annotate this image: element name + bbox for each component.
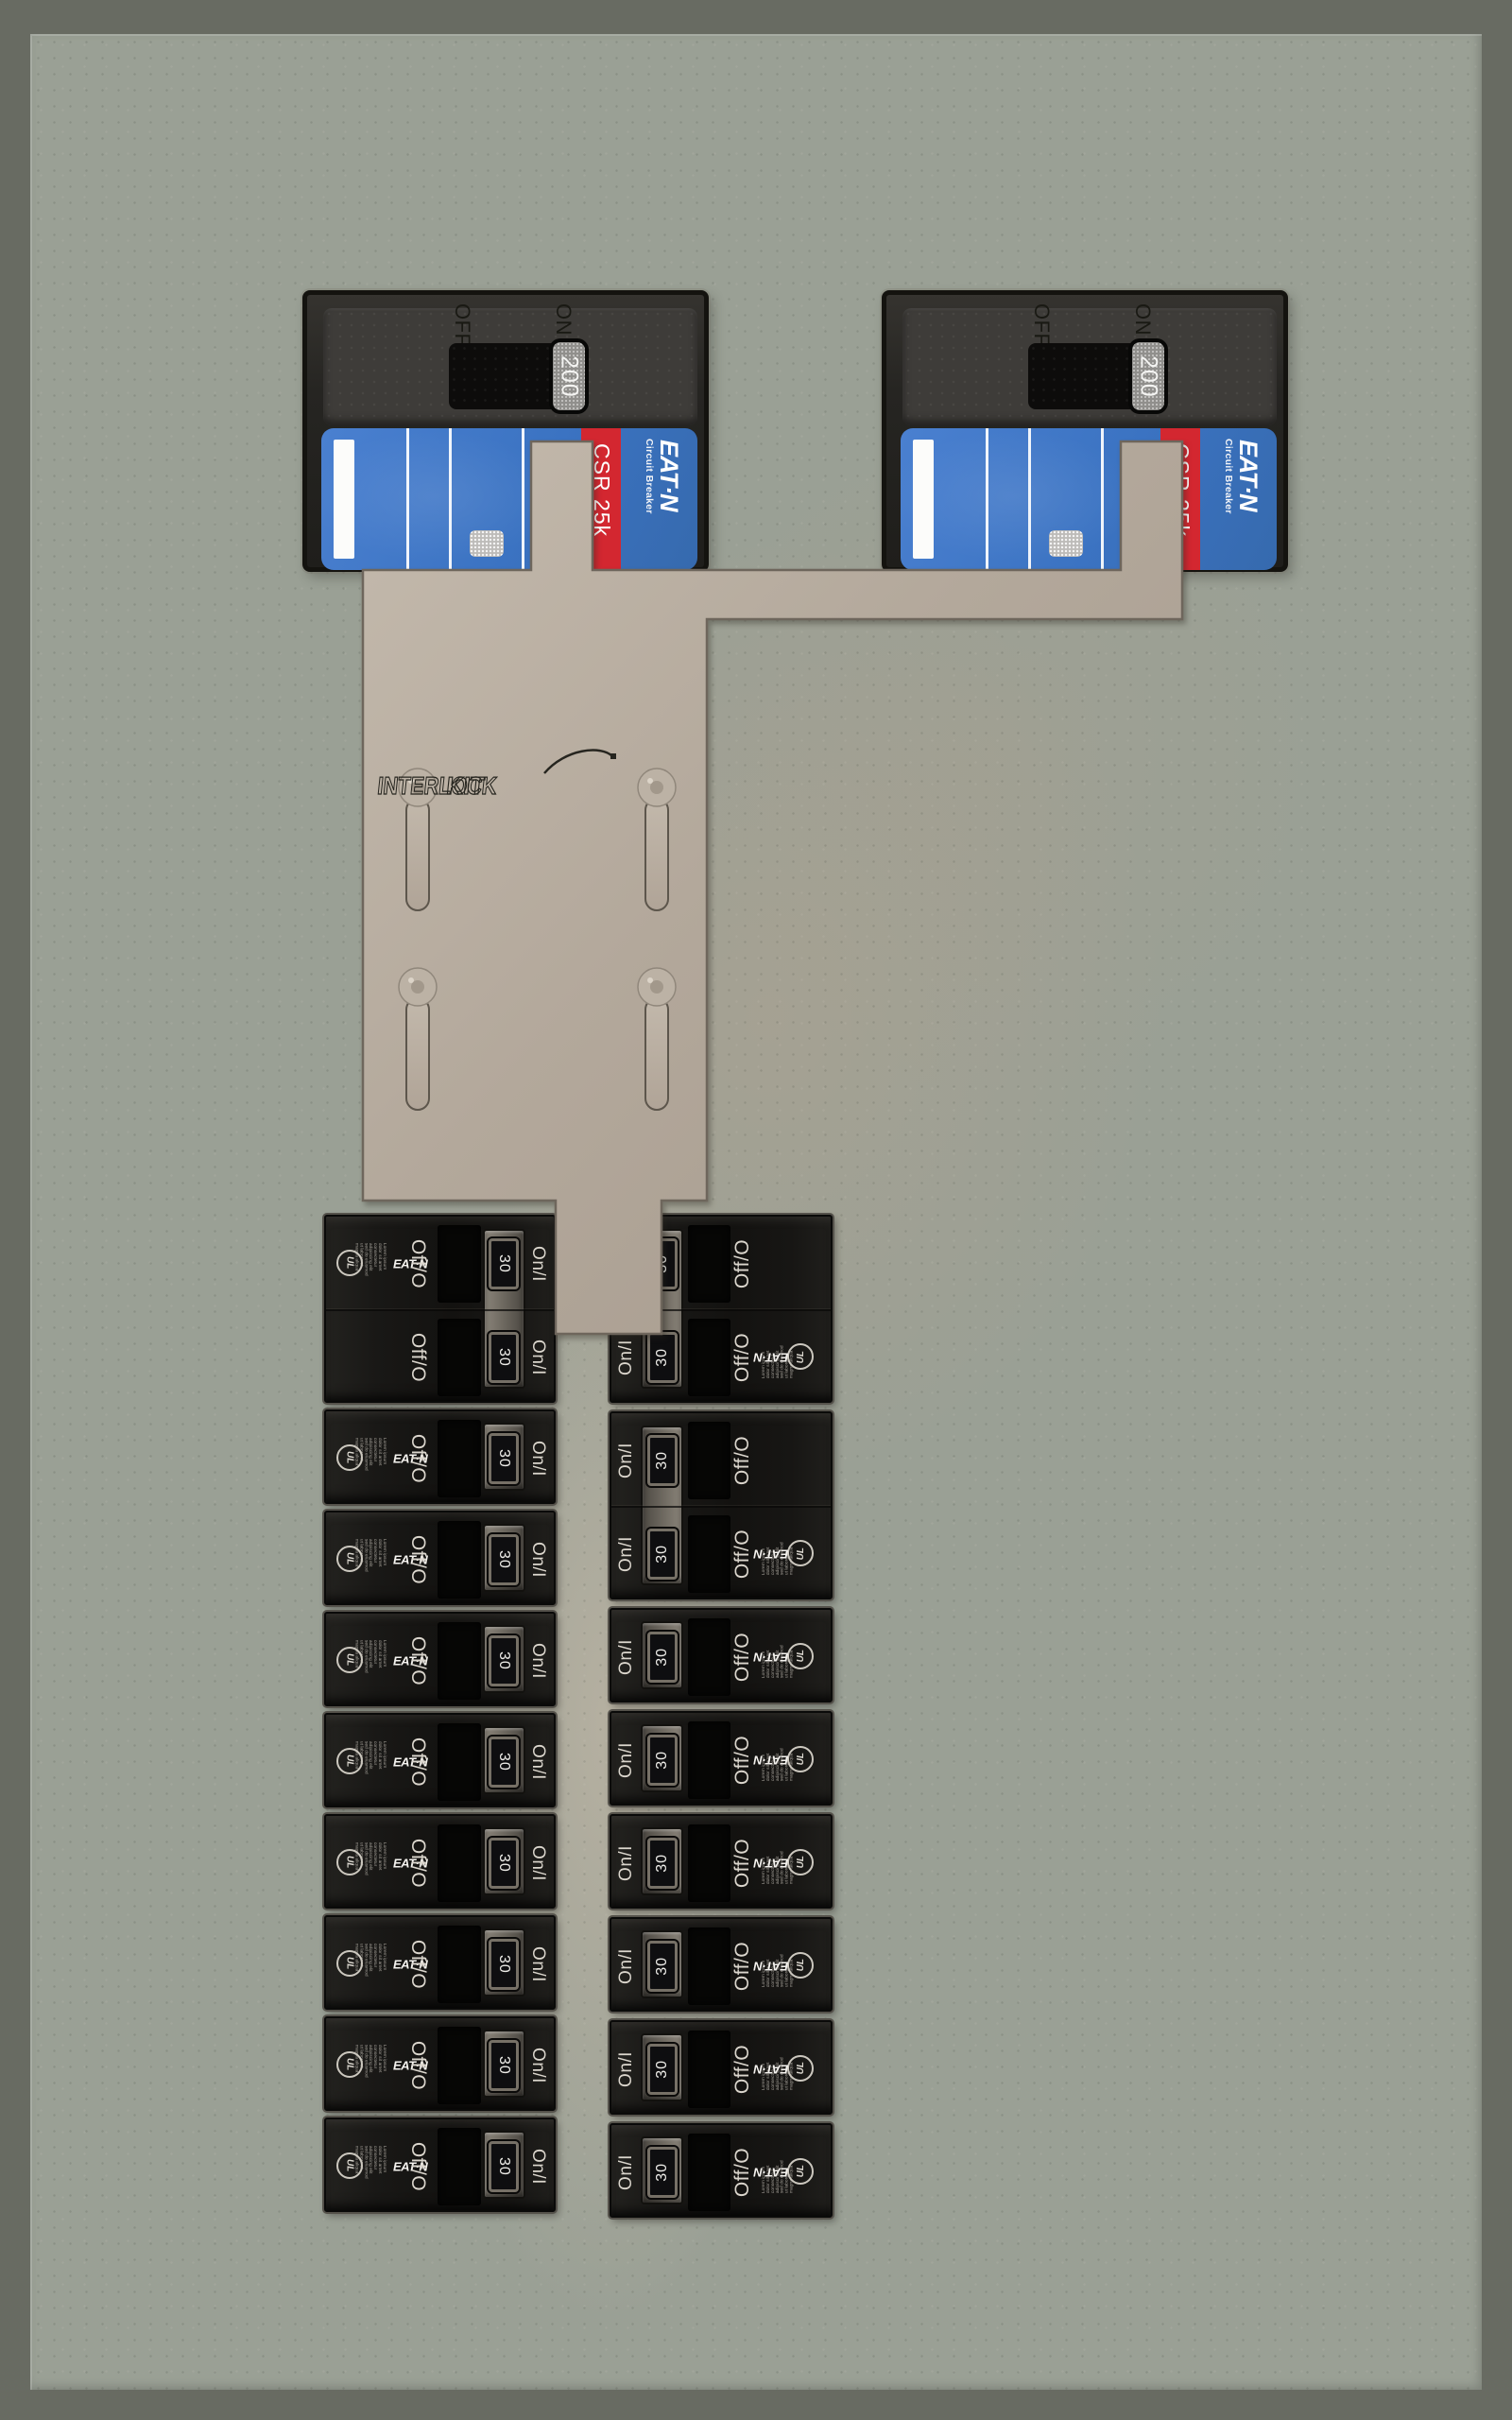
branch-breaker-toggle[interactable]: 30: [489, 1238, 519, 1289]
amp-label: 30: [654, 2163, 671, 2182]
fine-print-line: sed do eiusmod: [364, 1741, 369, 1783]
fine-print: Lorem ipsumdolor sit ametconsecteturadip…: [354, 1944, 387, 1985]
fine-print-line: dolor sit amet: [377, 1640, 382, 1682]
fine-print-line: magna aliqua: [354, 1438, 359, 1479]
breaker-row: ULLorem ipsumdolor sit ametconsecteturad…: [326, 2018, 554, 2113]
breaker-block-left-3: ULLorem ipsumdolor sit ametconsecteturad…: [324, 1511, 556, 1605]
breaker-block-left-1: ULLorem ipsumdolor sit ametconsecteturad…: [324, 1215, 556, 1403]
fine-print-line: magna aliqua: [354, 1243, 359, 1285]
breaker-recess: [688, 1515, 730, 1593]
fine-print: Lorem ipsumdolor sit ametconsecteturadip…: [354, 1842, 387, 1884]
on-label: On/I: [527, 2048, 548, 2083]
on-label: On/I: [616, 1340, 637, 1375]
fine-print-line: ut labore et: [359, 1438, 364, 1479]
off-label: OFF: [1029, 303, 1054, 349]
on-label: On/I: [527, 2149, 548, 2185]
fine-print-line: adipiscing elit: [369, 1741, 373, 1783]
branch-breaker-toggle[interactable]: 30: [489, 1737, 519, 1788]
on-label: On/I: [527, 1946, 548, 1982]
off-label: Off/O: [731, 1633, 754, 1682]
breaker-row: ULLorem ipsumdolor sit ametconsecteturad…: [611, 1713, 831, 1807]
breaker-row: ULLorem ipsumdolor sit ametconsecteturad…: [326, 1614, 554, 1708]
fine-print-line: Lorem ipsum: [382, 1842, 387, 1884]
breaker-recess: [438, 1723, 481, 1801]
off-label: Off/O: [731, 1333, 754, 1382]
breaker-block-right-4: ULLorem ipsumdolor sit ametconsecteturad…: [610, 1711, 833, 1806]
fine-print-line: Lorem ipsum: [382, 2045, 387, 2086]
off-label: Off/O: [406, 1636, 429, 1685]
branch-breaker-toggle[interactable]: 30: [647, 1529, 678, 1580]
fine-print: Lorem ipsumdolor sit ametconsecteturadip…: [354, 2146, 387, 2187]
ul-label: UL: [796, 1753, 806, 1765]
branch-breaker-toggle[interactable]: 30: [489, 2141, 519, 2192]
fine-print-line: magna aliqua: [354, 1741, 359, 1783]
fine-print-line: dolor sit amet: [377, 1944, 382, 1985]
fine-print-line: magna aliqua: [789, 1739, 794, 1781]
on-label: On/I: [616, 1246, 637, 1282]
fine-print-line: consectetur: [372, 1640, 377, 1682]
fine-print-line: Lorem ipsum: [382, 1944, 387, 1985]
breaker-recess: [688, 1618, 730, 1696]
amp-label: 30: [654, 1648, 671, 1667]
fine-print-line: consectetur: [372, 1842, 377, 1884]
breaker-block-right-8: ULLorem ipsumdolor sit ametconsecteturad…: [610, 2123, 833, 2218]
breaker-row: ULLorem ipsumdolor sit ametconsecteturad…: [611, 1919, 831, 2014]
breaker-block-right-7: ULLorem ipsumdolor sit ametconsecteturad…: [610, 2020, 833, 2115]
fine-print-line: ut labore et: [359, 1842, 364, 1884]
branch-breaker-toggle[interactable]: 30: [647, 1238, 678, 1289]
model-label: CSR 25k: [589, 443, 614, 537]
off-label: Off/O: [731, 2045, 754, 2094]
off-label: Off/O: [406, 1239, 429, 1288]
fine-print-line: sed do eiusmod: [364, 2045, 369, 2086]
breaker-recess: [438, 1926, 481, 2003]
fine-print-line: magna aliqua: [354, 2146, 359, 2187]
fine-print-line: ut labore et: [359, 1243, 364, 1285]
on-label: On/I: [616, 1443, 637, 1478]
breaker-block-left-2: ULLorem ipsumdolor sit ametconsecteturad…: [324, 1409, 556, 1504]
on-label: On/I: [527, 1340, 548, 1375]
fine-print-line: consectetur: [372, 2045, 377, 2086]
off-label: Off/O: [731, 1239, 754, 1288]
breaker-recess: [688, 1927, 730, 2005]
fine-print: Lorem ipsumdolor sit ametconsecteturadip…: [354, 2045, 387, 2086]
fine-print-line: dolor sit amet: [377, 1438, 382, 1479]
on-label: On/I: [616, 2051, 637, 2087]
fine-print-line: sed do eiusmod: [364, 1842, 369, 1884]
eaton-logo-small: EAT·N: [754, 1351, 788, 1365]
amp-label: 30: [654, 1545, 671, 1564]
label-divider: [406, 428, 409, 570]
branch-breaker-toggle[interactable]: 30: [647, 1838, 678, 1889]
ul-label: UL: [796, 1351, 806, 1363]
label-divider: [1028, 428, 1031, 570]
amp-label: 30: [495, 1854, 512, 1873]
breaker-row: ULLorem ipsumdolor sit ametconsecteturad…: [326, 1816, 554, 1910]
fine-print-line: ut labore et: [359, 1741, 364, 1783]
fine-print-line: sed do eiusmod: [364, 1944, 369, 1985]
breaker-row: Off/O30On/I: [326, 1311, 554, 1406]
branch-breaker-toggle[interactable]: 30: [647, 1735, 678, 1786]
amp-label: 30: [495, 1348, 512, 1367]
on-label: On/I: [616, 1639, 637, 1675]
amp-label: 30: [495, 1955, 512, 1974]
fine-print-line: dolor sit amet: [377, 1741, 382, 1783]
fine-print-line: magna aliqua: [789, 1842, 794, 1884]
fine-print-line: Lorem ipsum: [382, 1741, 387, 1783]
fine-print-line: Lorem ipsum: [382, 2146, 387, 2187]
amp-label: 30: [495, 2056, 512, 2075]
fine-print-line: Lorem ipsum: [382, 1243, 387, 1285]
breaker-block-left-9: ULLorem ipsumdolor sit ametconsecteturad…: [324, 2117, 556, 2212]
eaton-logo-small: EAT·N: [754, 2063, 788, 2077]
breaker-recess: [438, 1824, 481, 1902]
fine-print-line: adipiscing elit: [369, 2045, 373, 2086]
breaker-block-left-7: ULLorem ipsumdolor sit ametconsecteturad…: [324, 1915, 556, 2010]
branch-column-left: ULLorem ipsumdolor sit ametconsecteturad…: [324, 1215, 556, 2212]
on-label: On/I: [527, 1441, 548, 1477]
fine-print-line: consectetur: [372, 1243, 377, 1285]
fine-print-line: consectetur: [372, 1741, 377, 1783]
fine-print-line: adipiscing elit: [369, 1842, 373, 1884]
fine-print-line: magna aliqua: [354, 1944, 359, 1985]
main-breaker-handle[interactable]: 200: [549, 338, 589, 414]
breaker-recess: [438, 1521, 481, 1599]
branch-breaker-toggle[interactable]: 30: [489, 2040, 519, 2091]
off-label: Off/O: [406, 1940, 429, 1989]
off-label: Off/O: [731, 1942, 754, 1991]
eaton-logo-small: EAT·N: [754, 2166, 788, 2180]
on-label: On/I: [527, 1246, 548, 1282]
amp-label: 30: [654, 2060, 671, 2079]
on-label: On/I: [616, 1742, 637, 1778]
breaker-row: ULLorem ipsumdolor sit ametconsecteturad…: [326, 1917, 554, 2012]
branch-breaker-toggle[interactable]: 30: [489, 1534, 519, 1585]
breaker-block-right-5: ULLorem ipsumdolor sit ametconsecteturad…: [610, 1814, 833, 1909]
fine-print: Lorem ipsumdolor sit ametconsecteturadip…: [354, 1741, 387, 1783]
breaker-block-left-6: ULLorem ipsumdolor sit ametconsecteturad…: [324, 1814, 556, 1909]
amp-label: 30: [495, 1550, 512, 1569]
amp-label: 30: [654, 1451, 671, 1470]
ul-label: UL: [796, 1959, 806, 1971]
amp-label: 30: [654, 1957, 671, 1976]
breaker-recess: [688, 1422, 730, 1499]
label-white-bar: [913, 440, 934, 559]
fine-print-line: Lorem ipsum: [382, 1539, 387, 1581]
breaker-row: ULLorem ipsumdolor sit ametconsecteturad…: [611, 2125, 831, 2220]
fine-print-line: magna aliqua: [789, 1636, 794, 1678]
breaker-block-right-2: Off/O30On/IULLorem ipsumdolor sit ametco…: [610, 1411, 833, 1599]
test-button-pad[interactable]: [1049, 530, 1083, 557]
fine-print-line: dolor sit amet: [377, 2146, 382, 2187]
breaker-row: ULLorem ipsumdolor sit ametconsecteturad…: [611, 1508, 831, 1602]
off-label: Off/O: [406, 2041, 429, 2090]
fine-print-line: adipiscing elit: [369, 1243, 373, 1285]
panel-frame: OFF ON 200 CSR 25k Circuit Breaker EAT·N…: [0, 0, 1512, 2420]
amp-label: 30: [495, 1254, 512, 1273]
breaker-row: ULLorem ipsumdolor sit ametconsecteturad…: [611, 1610, 831, 1704]
off-label: Off/O: [731, 1436, 754, 1485]
ul-label: UL: [796, 1547, 806, 1560]
on-label: On/I: [616, 1536, 637, 1572]
fine-print: Lorem ipsumdolor sit ametconsecteturadip…: [354, 1640, 387, 1682]
amp-label: 30: [495, 2157, 512, 2176]
off-label: Off/O: [406, 1839, 429, 1888]
fine-print-line: ut labore et: [359, 2045, 364, 2086]
fine-print-line: magna aliqua: [789, 2048, 794, 2090]
ul-label: UL: [796, 2062, 806, 2074]
breaker-recess: [438, 1420, 481, 1497]
fine-print: Lorem ipsumdolor sit ametconsecteturadip…: [354, 1243, 387, 1285]
fine-print-line: dolor sit amet: [377, 1243, 382, 1285]
on-label: On/I: [527, 1542, 548, 1578]
amp-label: 30: [654, 1254, 671, 1273]
amp-label: 30: [495, 1753, 512, 1772]
branch-breaker-toggle[interactable]: 30: [647, 1941, 678, 1992]
model-label: CSR 25k: [1168, 443, 1194, 537]
breaker-row: ULLorem ipsumdolor sit ametconsecteturad…: [326, 1512, 554, 1607]
eaton-logo-small: EAT·N: [754, 1857, 788, 1871]
fine-print-line: dolor sit amet: [377, 1539, 382, 1581]
fine-print-line: sed do eiusmod: [364, 1539, 369, 1581]
breaker-row: Off/O30On/I: [611, 1413, 831, 1508]
amp-label: 30: [654, 1854, 671, 1873]
breaker-row: ULLorem ipsumdolor sit ametconsecteturad…: [326, 1715, 554, 1809]
fine-print-line: Lorem ipsum: [382, 1640, 387, 1682]
breaker-recess: [688, 1824, 730, 1902]
fine-print-line: magna aliqua: [354, 1640, 359, 1682]
off-label: OFF: [450, 303, 474, 349]
breaker-recess: [438, 1225, 481, 1303]
fine-print-line: magna aliqua: [354, 1539, 359, 1581]
main-breaker-right: OFF ON 200 CSR 25k Circuit Breaker EAT·N: [882, 290, 1288, 572]
amp-label: 30: [654, 1348, 671, 1367]
breaker-row: Off/O30On/I: [611, 1217, 831, 1311]
ul-label: UL: [796, 2165, 806, 2177]
breaker-recess: [688, 1319, 730, 1396]
amp-label: 30: [495, 1651, 512, 1670]
eaton-logo-small: EAT·N: [754, 1960, 788, 1974]
breaker-block-right-3: ULLorem ipsumdolor sit ametconsecteturad…: [610, 1608, 833, 1703]
label-divider: [449, 428, 452, 570]
fine-print-line: adipiscing elit: [369, 1438, 373, 1479]
fine-print-line: adipiscing elit: [369, 1539, 373, 1581]
branch-breaker-toggle[interactable]: 30: [647, 2147, 678, 2198]
fine-print-line: ut labore et: [359, 1944, 364, 1985]
fine-print-line: sed do eiusmod: [364, 1438, 369, 1479]
breaker-block-left-8: ULLorem ipsumdolor sit ametconsecteturad…: [324, 2016, 556, 2111]
breaker-recess: [438, 2128, 481, 2205]
off-label: Off/O: [406, 1333, 429, 1382]
fine-print-line: consectetur: [372, 2146, 377, 2187]
label-white-bar: [334, 440, 354, 559]
fine-print-line: adipiscing elit: [369, 2146, 373, 2187]
fine-print-line: sed do eiusmod: [364, 1640, 369, 1682]
fine-print-line: sed do eiusmod: [364, 1243, 369, 1285]
on-label: On/I: [527, 1845, 548, 1881]
breaker-row: ULLorem ipsumdolor sit ametconsecteturad…: [611, 2022, 831, 2117]
branch-breaker-toggle[interactable]: 30: [647, 1632, 678, 1683]
fine-print-line: ut labore et: [359, 2146, 364, 2187]
test-button-pad[interactable]: [470, 530, 504, 557]
breaker-row: ULLorem ipsumdolor sit ametconsecteturad…: [326, 1411, 554, 1506]
branch-breaker-toggle[interactable]: 30: [489, 1939, 519, 1990]
branch-column-right: Off/O30On/IULLorem ipsumdolor sit ametco…: [610, 1215, 833, 2218]
off-label: Off/O: [406, 1737, 429, 1787]
branch-breaker-toggle[interactable]: 30: [647, 1435, 678, 1486]
fine-print-line: magna aliqua: [789, 1337, 794, 1378]
breaker-recess: [688, 2031, 730, 2108]
off-label: Off/O: [406, 2142, 429, 2191]
eaton-logo-small: EAT·N: [754, 1547, 788, 1562]
breaker-row: ULLorem ipsumdolor sit ametconsecteturad…: [326, 2119, 554, 2214]
eaton-logo: EAT·N: [654, 440, 683, 511]
on-label: On/I: [527, 1643, 548, 1679]
breaker-recess: [688, 2134, 730, 2211]
breaker-block-left-4: ULLorem ipsumdolor sit ametconsecteturad…: [324, 1612, 556, 1706]
breaker-row: ULLorem ipsumdolor sit ametconsecteturad…: [611, 1816, 831, 1910]
fine-print-line: magna aliqua: [789, 1945, 794, 1987]
off-label: Off/O: [731, 1736, 754, 1785]
breaker-label: CSR 25k Circuit Breaker EAT·N: [321, 428, 697, 570]
breaker-recess: [438, 1319, 481, 1396]
ul-label: UL: [796, 1856, 806, 1868]
breaker-recess: [438, 2027, 481, 2104]
eaton-logo-small: EAT·N: [754, 1754, 788, 1768]
fine-print-line: ut labore et: [359, 1640, 364, 1682]
off-label: Off/O: [731, 1839, 754, 1888]
fine-print-line: sed do eiusmod: [364, 2146, 369, 2187]
branch-breaker-toggle[interactable]: 30: [647, 1332, 678, 1383]
main-breaker-left: OFF ON 200 CSR 25k Circuit Breaker EAT·N: [302, 290, 709, 572]
breaker-block-right-1: Off/O30On/IULLorem ipsumdolor sit ametco…: [610, 1215, 833, 1403]
breaker-row: ULLorem ipsumdolor sit ametconsecteturad…: [326, 1217, 554, 1311]
on-label: On/I: [616, 2154, 637, 2190]
eaton-logo: EAT·N: [1233, 440, 1263, 511]
ul-label: UL: [796, 1650, 806, 1662]
fine-print-line: ut labore et: [359, 1539, 364, 1581]
breaker-recess: [438, 1622, 481, 1700]
label-divider: [1101, 428, 1104, 570]
handle-amp-label: 200: [556, 355, 583, 398]
breaker-block-left-5: ULLorem ipsumdolor sit ametconsecteturad…: [324, 1713, 556, 1807]
handle-amp-label: 200: [1135, 355, 1162, 398]
label-divider: [986, 428, 988, 570]
branch-breaker-toggle[interactable]: 30: [647, 2044, 678, 2095]
breaker-recess: [688, 1225, 730, 1303]
on-label: On/I: [616, 1845, 637, 1881]
off-label: Off/O: [731, 1530, 754, 1579]
fine-print-line: consectetur: [372, 1944, 377, 1985]
fine-print-line: magna aliqua: [354, 2045, 359, 2086]
fine-print-line: adipiscing elit: [369, 1640, 373, 1682]
off-label: Off/O: [731, 2148, 754, 2197]
fine-print-line: magna aliqua: [354, 1842, 359, 1884]
fine-print-line: adipiscing elit: [369, 1944, 373, 1985]
fine-print: Lorem ipsumdolor sit ametconsecteturadip…: [354, 1539, 387, 1581]
breaker-label: CSR 25k Circuit Breaker EAT·N: [901, 428, 1277, 570]
main-breaker-handle[interactable]: 200: [1128, 338, 1168, 414]
off-label: Off/O: [406, 1434, 429, 1483]
fine-print-line: magna aliqua: [789, 1533, 794, 1575]
branch-breaker-toggle[interactable]: 30: [489, 1635, 519, 1686]
fine-print-line: Lorem ipsum: [382, 1438, 387, 1479]
branch-breaker-toggle[interactable]: 30: [489, 1332, 519, 1383]
fine-print-line: consectetur: [372, 1438, 377, 1479]
eaton-logo-small: EAT·N: [754, 1651, 788, 1665]
breaker-row: ULLorem ipsumdolor sit ametconsecteturad…: [611, 1311, 831, 1406]
on-label: On/I: [527, 1744, 548, 1780]
label-divider: [522, 428, 524, 570]
branch-breaker-toggle[interactable]: 30: [489, 1433, 519, 1484]
fine-print: Lorem ipsumdolor sit ametconsecteturadip…: [354, 1438, 387, 1479]
breaker-block-right-6: ULLorem ipsumdolor sit ametconsecteturad…: [610, 1917, 833, 2012]
fine-print-line: consectetur: [372, 1539, 377, 1581]
amp-label: 30: [495, 1449, 512, 1468]
breaker-recess: [688, 1721, 730, 1799]
fine-print-line: dolor sit amet: [377, 2045, 382, 2086]
branch-breaker-toggle[interactable]: 30: [489, 1838, 519, 1889]
on-label: On/I: [616, 1948, 637, 1984]
fine-print-line: magna aliqua: [789, 2152, 794, 2193]
off-label: Off/O: [406, 1535, 429, 1584]
fine-print-line: dolor sit amet: [377, 1842, 382, 1884]
amp-label: 30: [654, 1751, 671, 1770]
